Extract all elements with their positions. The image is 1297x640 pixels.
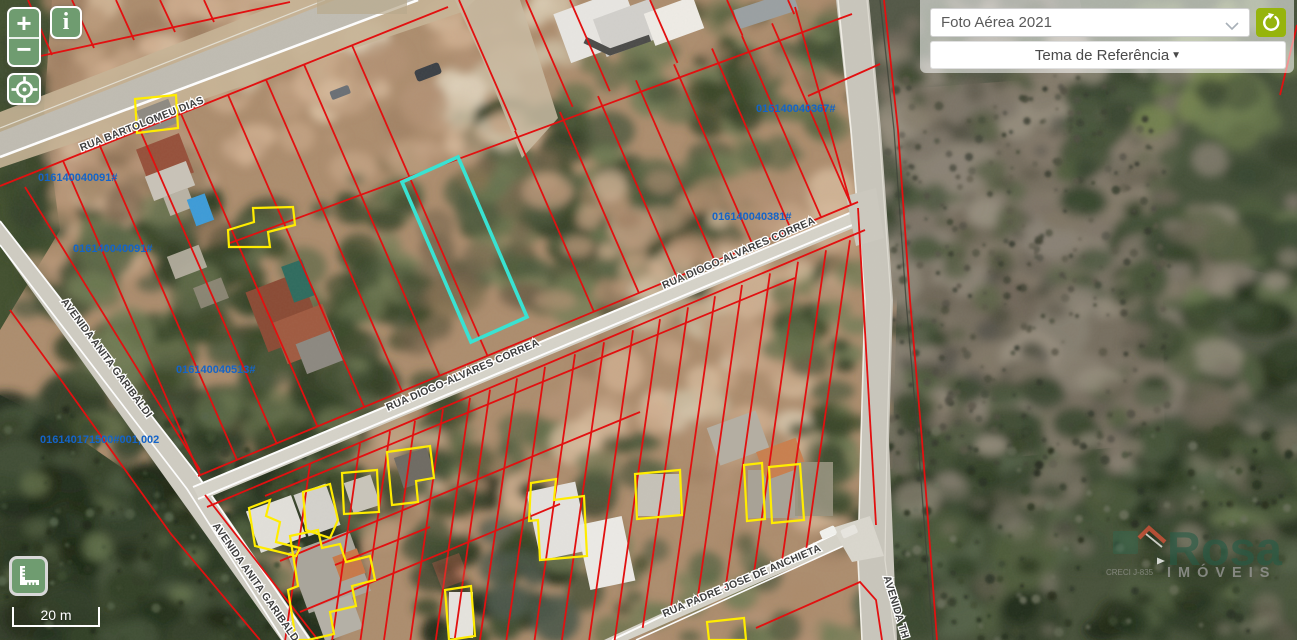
svg-text:016140040513#: 016140040513# [176,364,256,376]
svg-text:016140040091#: 016140040091# [73,243,153,255]
svg-text:016140040091#: 016140040091# [38,172,118,184]
svg-text:016140040367#: 016140040367# [756,103,836,115]
svg-text:IMÓVEIS: IMÓVEIS [1167,563,1276,581]
svg-text:016140040381#: 016140040381# [712,211,792,223]
svg-text:016140171500#001,002: 016140171500#001,002 [40,434,159,446]
svg-text:CRECI J-835: CRECI J-835 [1106,568,1154,577]
